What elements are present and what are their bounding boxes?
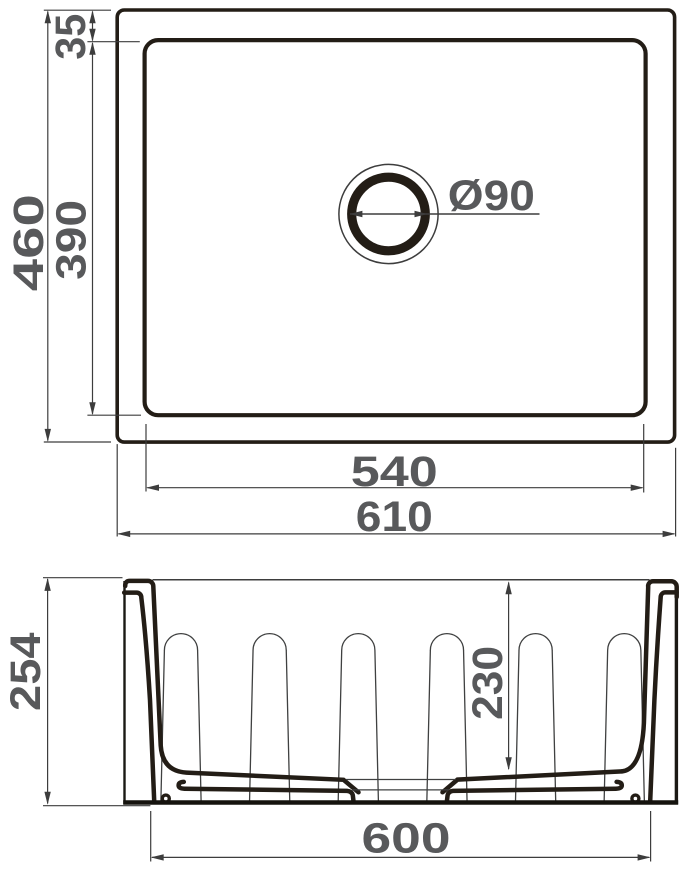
svg-text:230: 230 xyxy=(465,646,512,720)
svg-text:254: 254 xyxy=(3,632,50,711)
svg-text:610: 610 xyxy=(356,494,433,541)
svg-text:540: 540 xyxy=(351,449,438,496)
svg-text:390: 390 xyxy=(49,200,96,280)
svg-text:600: 600 xyxy=(362,815,451,862)
svg-text:Ø90: Ø90 xyxy=(448,173,535,220)
svg-text:460: 460 xyxy=(6,194,53,291)
svg-text:35: 35 xyxy=(48,14,95,60)
